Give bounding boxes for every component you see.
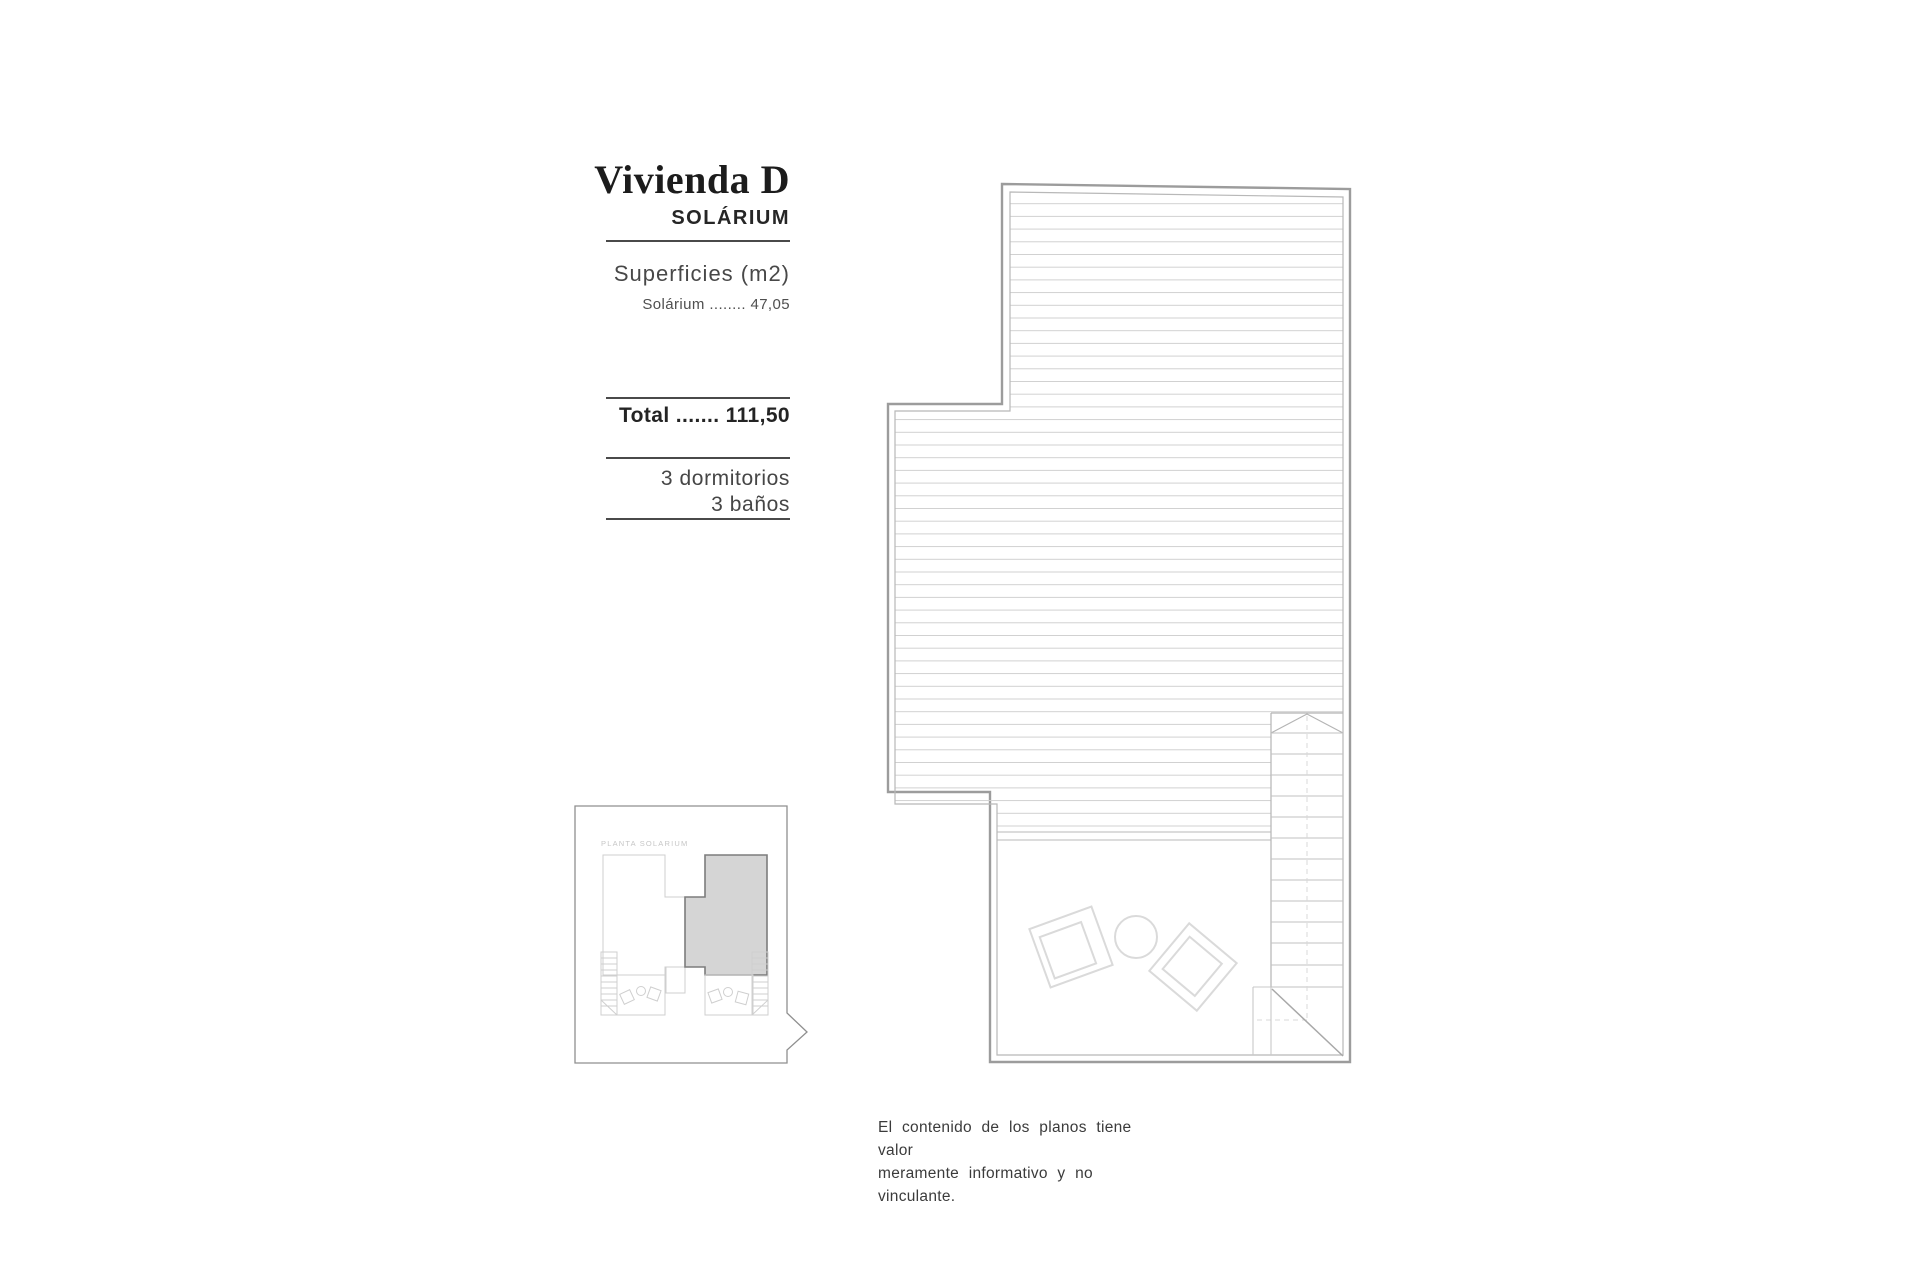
disclaimer-line-2: meramente informativo y no vinculante. [878,1162,1158,1208]
info-panel: Vivienda D SOLÁRIUM Superficies (m2) Sol… [480,0,790,560]
total-line: Total ....... 111,50 [619,404,790,428]
divider-rule [606,457,790,459]
main-floor-plan [880,170,1360,1070]
key-plan-label: PLANTA SOLARIUM [601,839,688,848]
page-canvas: Vivienda D SOLÁRIUM Superficies (m2) Sol… [0,0,1920,1280]
key-plan-thumbnail: PLANTA SOLARIUM [570,798,820,1070]
bathrooms-line: 3 baños [711,493,790,517]
disclaimer-note: El contenido de los planos tiene valor m… [878,1116,1158,1208]
plan-subtitle: SOLÁRIUM [671,207,790,230]
divider-rule [606,518,790,520]
disclaimer-line-1: El contenido de los planos tiene valor [878,1116,1158,1162]
divider-rule [606,240,790,242]
surface-line-solarium: Solárium ........ 47,05 [642,296,790,313]
divider-rule [606,397,790,399]
plan-title: Vivienda D [594,156,790,203]
bedrooms-line: 3 dormitorios [661,467,790,491]
surfaces-header: Superficies (m2) [614,261,790,287]
